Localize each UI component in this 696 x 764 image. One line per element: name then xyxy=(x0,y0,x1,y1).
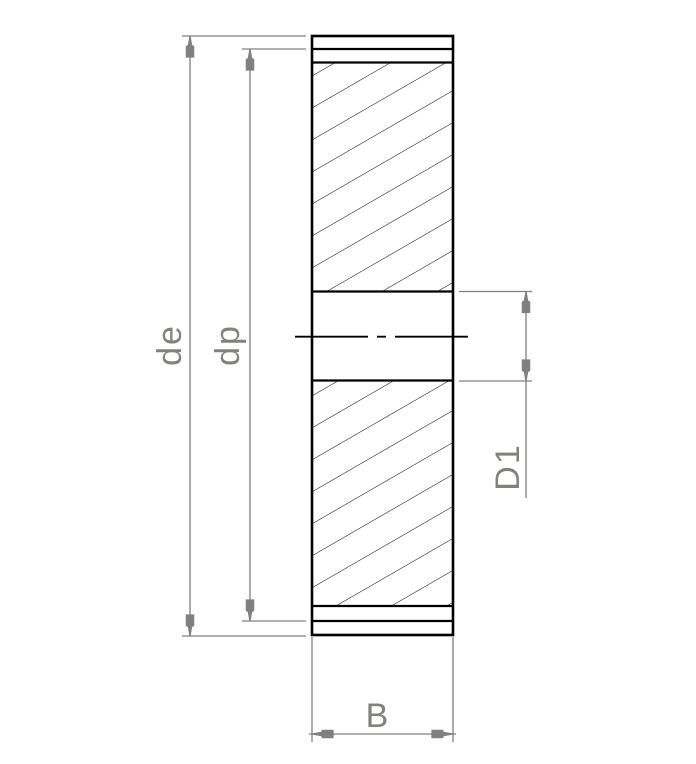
de-arrow-down xyxy=(186,615,193,636)
hatch-region-top xyxy=(312,63,453,292)
dp-dimension xyxy=(242,49,306,621)
dp-arrow-down xyxy=(246,600,253,621)
b-arrow-left xyxy=(312,730,333,737)
hatch-region-bottom xyxy=(312,381,453,607)
gear-body xyxy=(295,36,468,635)
gear-section-drawing xyxy=(0,0,696,764)
dp-arrow-up xyxy=(246,49,253,70)
de-arrow-up xyxy=(186,36,193,57)
drawing-canvas: de dp D1 B xyxy=(0,0,696,764)
b-arrow-right xyxy=(432,730,453,737)
dimension-label-dp: dp xyxy=(211,324,245,366)
d1-arrow-down xyxy=(522,360,529,381)
d1-arrow-up xyxy=(522,292,529,313)
dimension-label-d1: D1 xyxy=(491,443,525,490)
dimension-label-b: B xyxy=(366,699,391,733)
dimension-label-de: de xyxy=(153,324,187,366)
